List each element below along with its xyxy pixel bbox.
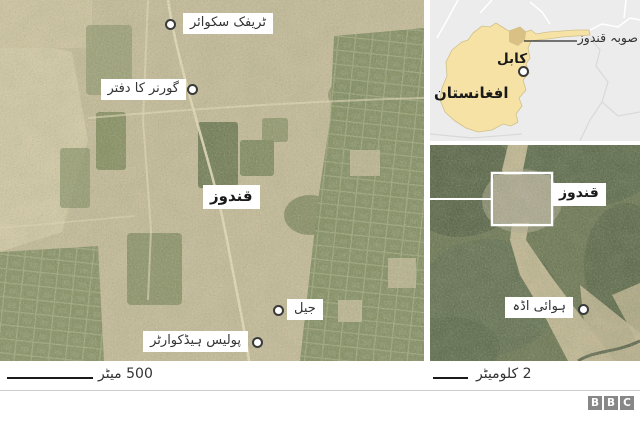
news-map-graphic: ٹریفک سکوائر گورنر کا دفتر قندوز جیل پول… bbox=[0, 0, 640, 425]
marker-governor-office bbox=[187, 84, 198, 95]
scale-bar-left bbox=[7, 377, 93, 379]
footer-divider bbox=[0, 390, 640, 391]
label-afghanistan: افغانستان bbox=[434, 84, 509, 102]
kunduz-region-satellite-art bbox=[430, 145, 640, 361]
kunduz-city-satellite-map bbox=[0, 0, 424, 361]
marker-airport bbox=[578, 304, 589, 315]
bbc-logo-letter: B bbox=[588, 396, 602, 410]
marker-police-hq bbox=[252, 337, 263, 348]
scale-label-right: 2 کلومیٹر bbox=[476, 366, 532, 382]
marker-kabul bbox=[518, 66, 529, 77]
scale-label-left: 500 میٹر bbox=[98, 366, 153, 382]
locator-callout-line bbox=[430, 198, 492, 200]
afghanistan-inset-map bbox=[430, 0, 640, 141]
label-governor-office: گورنر کا دفتر bbox=[101, 79, 187, 100]
label-kunduz-city: قندوز bbox=[203, 185, 260, 209]
bbc-logo-letter: C bbox=[620, 396, 634, 410]
label-kabul: کابل bbox=[497, 51, 527, 67]
label-airport: ہوائی اڈہ bbox=[505, 297, 573, 318]
kunduz-city-satellite-art bbox=[0, 0, 424, 361]
label-jail: جیل bbox=[287, 299, 323, 320]
label-kunduz-region: قندوز bbox=[552, 183, 606, 206]
label-police-hq: پولیس ہیڈکوارٹر bbox=[143, 331, 248, 352]
label-traffic-square: ٹریفک سکوائر bbox=[183, 13, 273, 34]
kunduz-region-satellite-map bbox=[430, 145, 640, 361]
marker-traffic-square bbox=[165, 19, 176, 30]
bbc-logo: B B C bbox=[588, 396, 634, 410]
bbc-logo-letter: B bbox=[604, 396, 618, 410]
label-kunduz-province: صوبہ قندوز bbox=[578, 30, 638, 45]
afghanistan-inset-art bbox=[430, 0, 640, 141]
scale-bar-right bbox=[433, 377, 468, 379]
marker-jail bbox=[273, 305, 284, 316]
